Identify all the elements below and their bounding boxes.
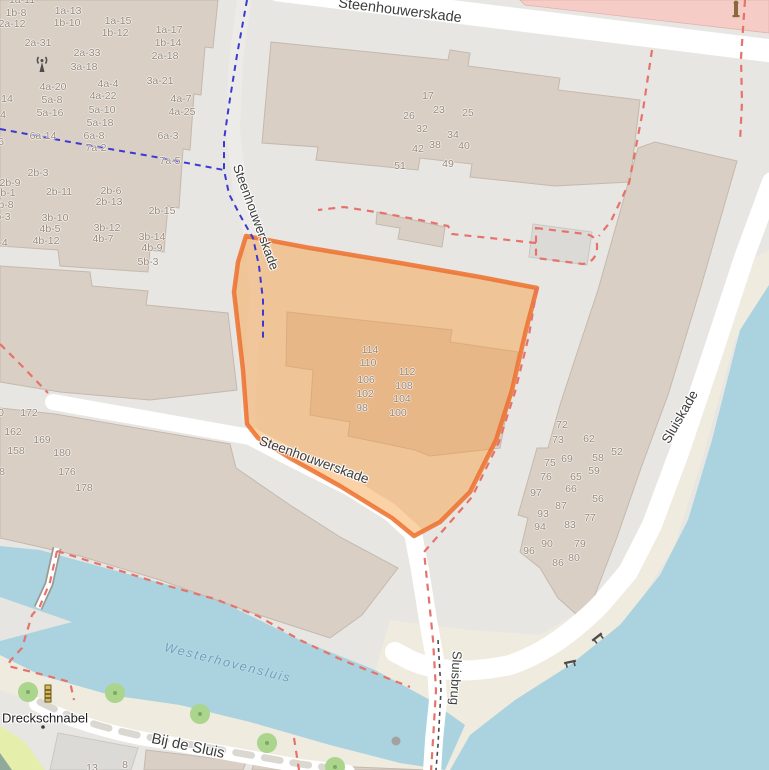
map-canvas[interactable]: SteenhouwerskadeSteenhouwerskadeSteenhou…	[0, 0, 769, 770]
place-dot	[41, 725, 45, 729]
beacon-column-icon	[45, 685, 51, 702]
bollard-dot	[392, 737, 401, 746]
